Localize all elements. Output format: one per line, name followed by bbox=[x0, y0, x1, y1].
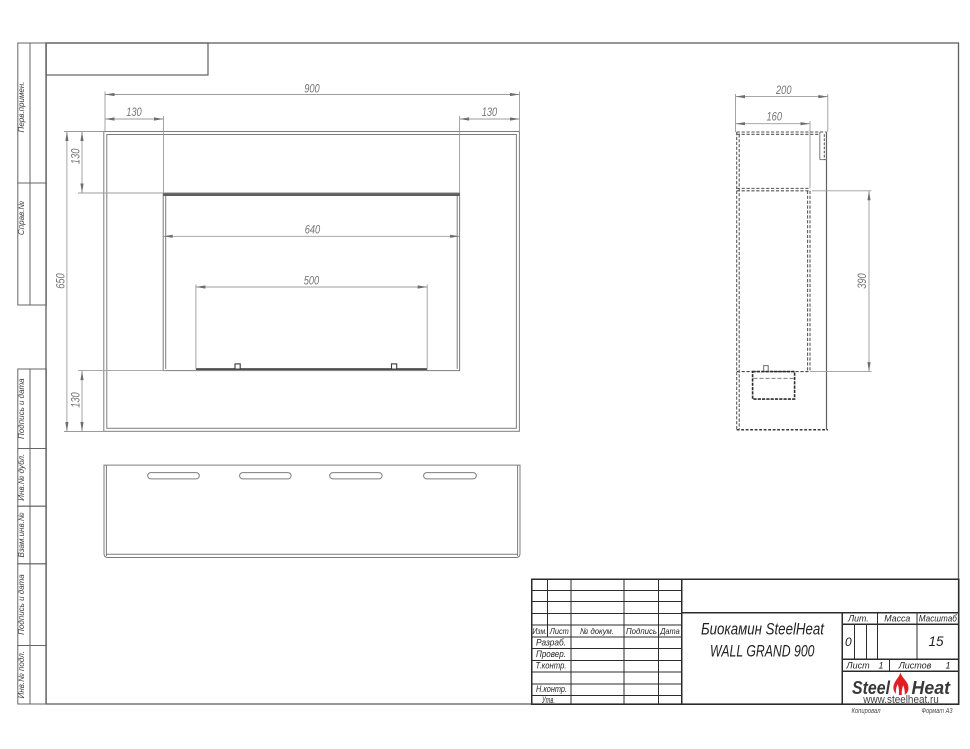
svg-text:130: 130 bbox=[71, 392, 83, 408]
svg-text:Листов: Листов bbox=[898, 661, 932, 671]
svg-text:Справ.№: Справ.№ bbox=[17, 201, 26, 235]
svg-text:200: 200 bbox=[775, 85, 792, 97]
svg-text:500: 500 bbox=[304, 275, 320, 287]
svg-text:Биокамин SteelHeat: Биокамин SteelHeat bbox=[701, 621, 825, 639]
svg-text:1: 1 bbox=[945, 661, 950, 671]
svg-text:Дата: Дата bbox=[659, 626, 680, 636]
svg-text:15: 15 bbox=[928, 634, 944, 649]
svg-text:Перв.примен.: Перв.примен. bbox=[17, 82, 26, 133]
svg-text:Утв.: Утв. bbox=[541, 695, 555, 705]
svg-text:№ докум.: № докум. bbox=[580, 626, 614, 636]
svg-text:Н.контр.: Н.контр. bbox=[536, 684, 567, 694]
svg-text:www.steelheat.ru: www.steelheat.ru bbox=[862, 694, 938, 706]
svg-text:130: 130 bbox=[126, 107, 142, 119]
svg-text:Изм.: Изм. bbox=[533, 626, 548, 636]
svg-text:390: 390 bbox=[857, 273, 869, 289]
svg-text:Подпись и дата: Подпись и дата bbox=[17, 574, 26, 635]
svg-text:Копировал: Копировал bbox=[852, 706, 882, 715]
svg-text:640: 640 bbox=[305, 224, 321, 236]
svg-text:Инв.№ подл.: Инв.№ подл. bbox=[17, 651, 26, 698]
svg-text:Разраб.: Разраб. bbox=[536, 637, 566, 647]
svg-text:Т.контр.: Т.контр. bbox=[536, 661, 567, 671]
svg-text:Взам.инв.№: Взам.инв.№ bbox=[17, 512, 26, 557]
svg-text:650: 650 bbox=[56, 273, 68, 289]
svg-text:900: 900 bbox=[304, 83, 320, 95]
svg-text:Провер.: Провер. bbox=[536, 649, 566, 659]
svg-text:Подпись: Подпись bbox=[626, 626, 657, 636]
svg-text:Формат А3: Формат А3 bbox=[922, 706, 954, 715]
svg-text:Лист: Лист bbox=[549, 626, 569, 636]
svg-text:Масса: Масса bbox=[884, 613, 910, 623]
svg-text:WALL GRAND 900: WALL GRAND 900 bbox=[710, 643, 815, 661]
svg-text:Инв.№ дубл.: Инв.№ дубл. bbox=[17, 454, 26, 501]
svg-text:Лист: Лист bbox=[845, 661, 870, 671]
svg-text:Масштаб: Масштаб bbox=[919, 613, 958, 623]
svg-text:Лит.: Лит. bbox=[847, 613, 869, 623]
svg-text:130: 130 bbox=[482, 107, 498, 119]
svg-text:1: 1 bbox=[878, 661, 883, 671]
svg-text:160: 160 bbox=[767, 111, 783, 123]
svg-text:130: 130 bbox=[71, 148, 83, 164]
svg-text:0: 0 bbox=[845, 635, 852, 649]
svg-text:Подпись и дата: Подпись и дата bbox=[17, 378, 26, 439]
